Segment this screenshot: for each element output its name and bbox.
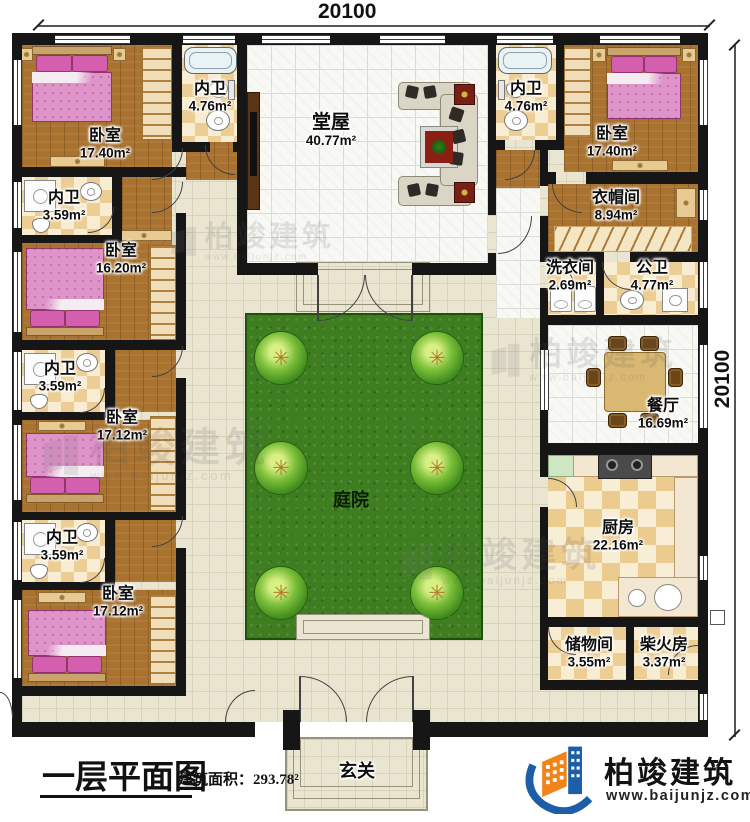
wall bbox=[496, 140, 505, 150]
dresser bbox=[612, 160, 668, 171]
bed bbox=[607, 47, 681, 119]
nightstand bbox=[682, 48, 696, 62]
wall bbox=[488, 33, 496, 215]
tree bbox=[255, 442, 307, 494]
wall bbox=[540, 443, 698, 455]
room-label-bedroom-tr: 卧室17.40m² bbox=[587, 125, 637, 158]
tree bbox=[411, 332, 463, 384]
closet bbox=[142, 46, 172, 140]
room-label-bath-tl: 内卫4.76m² bbox=[189, 80, 232, 113]
wall bbox=[105, 520, 115, 588]
room-label-bath-l3: 内卫3.59m² bbox=[39, 360, 82, 393]
wall-bottom bbox=[425, 722, 708, 737]
room-label-storage: 储物间3.55m² bbox=[565, 636, 613, 669]
room-label-bedroom-tl: 卧室17.40m² bbox=[80, 127, 130, 160]
hanger-rail bbox=[554, 226, 692, 252]
chair bbox=[668, 368, 683, 387]
sink bbox=[620, 290, 644, 310]
room-label-bath-l2: 内卫3.59m² bbox=[43, 189, 86, 222]
window bbox=[13, 182, 22, 228]
wall bbox=[540, 315, 698, 325]
window bbox=[699, 345, 708, 428]
wall bbox=[540, 507, 548, 617]
chair bbox=[640, 336, 659, 351]
room-label-courtyard: 庭院 bbox=[333, 490, 369, 510]
dimension-top-line bbox=[38, 25, 710, 27]
window bbox=[540, 350, 549, 410]
side-table bbox=[454, 84, 475, 105]
wall bbox=[586, 172, 698, 184]
entrance-pier bbox=[283, 710, 300, 750]
window bbox=[699, 190, 708, 220]
room-label-bedroom-l4: 卧室17.12m² bbox=[93, 585, 143, 618]
tree bbox=[411, 567, 463, 619]
room-label-bath-tr: 内卫4.76m² bbox=[505, 80, 548, 113]
company-logo-icon bbox=[520, 742, 598, 814]
chair bbox=[586, 368, 601, 387]
wall bbox=[626, 627, 634, 685]
kitchen-sink bbox=[654, 584, 682, 611]
room-label-bath-l4: 内卫3.59m² bbox=[41, 529, 84, 562]
window bbox=[13, 425, 22, 500]
door-leaf bbox=[411, 275, 413, 321]
room-label-bedroom-l2: 卧室16.20m² bbox=[96, 242, 146, 275]
room-label-firewood: 柴火房3.37m² bbox=[640, 636, 688, 669]
nightstand bbox=[113, 48, 126, 61]
prep-counter bbox=[548, 455, 574, 477]
wall bbox=[548, 172, 556, 184]
room-label-cloakroom: 衣帽间8.94m² bbox=[592, 189, 640, 222]
wall bbox=[540, 150, 548, 186]
wall bbox=[540, 680, 708, 690]
window bbox=[600, 35, 680, 44]
wall bbox=[22, 412, 105, 420]
bathtub bbox=[184, 47, 237, 74]
closet bbox=[564, 46, 591, 138]
bed bbox=[26, 248, 104, 336]
room-label-foyer: 玄关 bbox=[339, 761, 375, 781]
dimension-top: 20100 bbox=[318, 0, 376, 24]
room-label-dining: 餐厅16.69m² bbox=[638, 397, 688, 430]
window bbox=[380, 35, 445, 44]
wall bbox=[176, 378, 186, 515]
wall bbox=[105, 350, 115, 418]
window bbox=[13, 522, 22, 580]
dimension-right: 20100 bbox=[711, 348, 735, 410]
door-leaf bbox=[317, 275, 319, 321]
closet bbox=[150, 594, 176, 684]
window bbox=[699, 556, 708, 580]
bed bbox=[26, 433, 104, 503]
wall bbox=[237, 263, 318, 275]
wall bbox=[535, 140, 564, 150]
courtyard-steps bbox=[303, 620, 423, 634]
entrance-pier bbox=[413, 710, 430, 750]
ac-unit bbox=[710, 610, 725, 625]
tv bbox=[250, 112, 257, 176]
company-website: www.baijunjz.com bbox=[606, 788, 750, 804]
kitchen-sink bbox=[628, 589, 646, 607]
title-underline bbox=[40, 795, 192, 798]
dresser bbox=[38, 421, 86, 431]
floor-plan: 20100 20100 bbox=[0, 0, 750, 822]
window bbox=[13, 600, 22, 678]
window bbox=[13, 252, 22, 332]
window bbox=[497, 35, 553, 44]
side-table bbox=[454, 182, 475, 203]
tree bbox=[255, 567, 307, 619]
wall-bottom bbox=[12, 722, 255, 737]
bathtub bbox=[498, 47, 552, 74]
cushion bbox=[405, 85, 419, 99]
dresser bbox=[116, 230, 172, 241]
wall bbox=[556, 33, 564, 145]
tree bbox=[255, 332, 307, 384]
window bbox=[699, 262, 708, 308]
wall bbox=[412, 263, 496, 275]
wall bbox=[540, 325, 548, 350]
kitchen-counter bbox=[674, 477, 698, 581]
window bbox=[262, 35, 330, 44]
chair bbox=[608, 413, 627, 428]
dresser bbox=[38, 592, 86, 603]
closet bbox=[150, 416, 176, 511]
bed bbox=[32, 46, 112, 122]
window bbox=[699, 60, 708, 125]
tree bbox=[411, 442, 463, 494]
wall bbox=[237, 45, 247, 275]
closet bbox=[150, 245, 176, 340]
window bbox=[699, 694, 708, 720]
stove bbox=[598, 453, 652, 479]
cushion bbox=[423, 85, 437, 99]
wall bbox=[176, 213, 186, 345]
room-label-hall: 堂屋40.77m² bbox=[306, 112, 356, 148]
window bbox=[55, 35, 130, 44]
wall bbox=[12, 686, 186, 696]
plant bbox=[432, 140, 446, 154]
window bbox=[13, 352, 22, 410]
wall bbox=[176, 548, 186, 686]
wall bbox=[172, 33, 182, 145]
chair bbox=[608, 336, 627, 351]
built-area-note: 建筑面积：293.78² bbox=[178, 768, 299, 789]
cushion bbox=[425, 183, 439, 197]
nightstand bbox=[592, 48, 606, 62]
cushion bbox=[407, 183, 421, 197]
wall bbox=[548, 617, 698, 627]
bed bbox=[28, 610, 106, 682]
room-label-bedroom-l3: 卧室17.12m² bbox=[97, 409, 147, 442]
room-label-public-bath: 公卫4.77m² bbox=[631, 259, 674, 292]
room-label-laundry: 洗衣间2.69m² bbox=[546, 259, 594, 292]
vanity bbox=[676, 188, 696, 218]
room-label-kitchen: 厨房22.16m² bbox=[593, 519, 643, 552]
window bbox=[13, 60, 22, 125]
window bbox=[183, 35, 235, 44]
company-name: 柏竣建筑 bbox=[604, 748, 736, 792]
